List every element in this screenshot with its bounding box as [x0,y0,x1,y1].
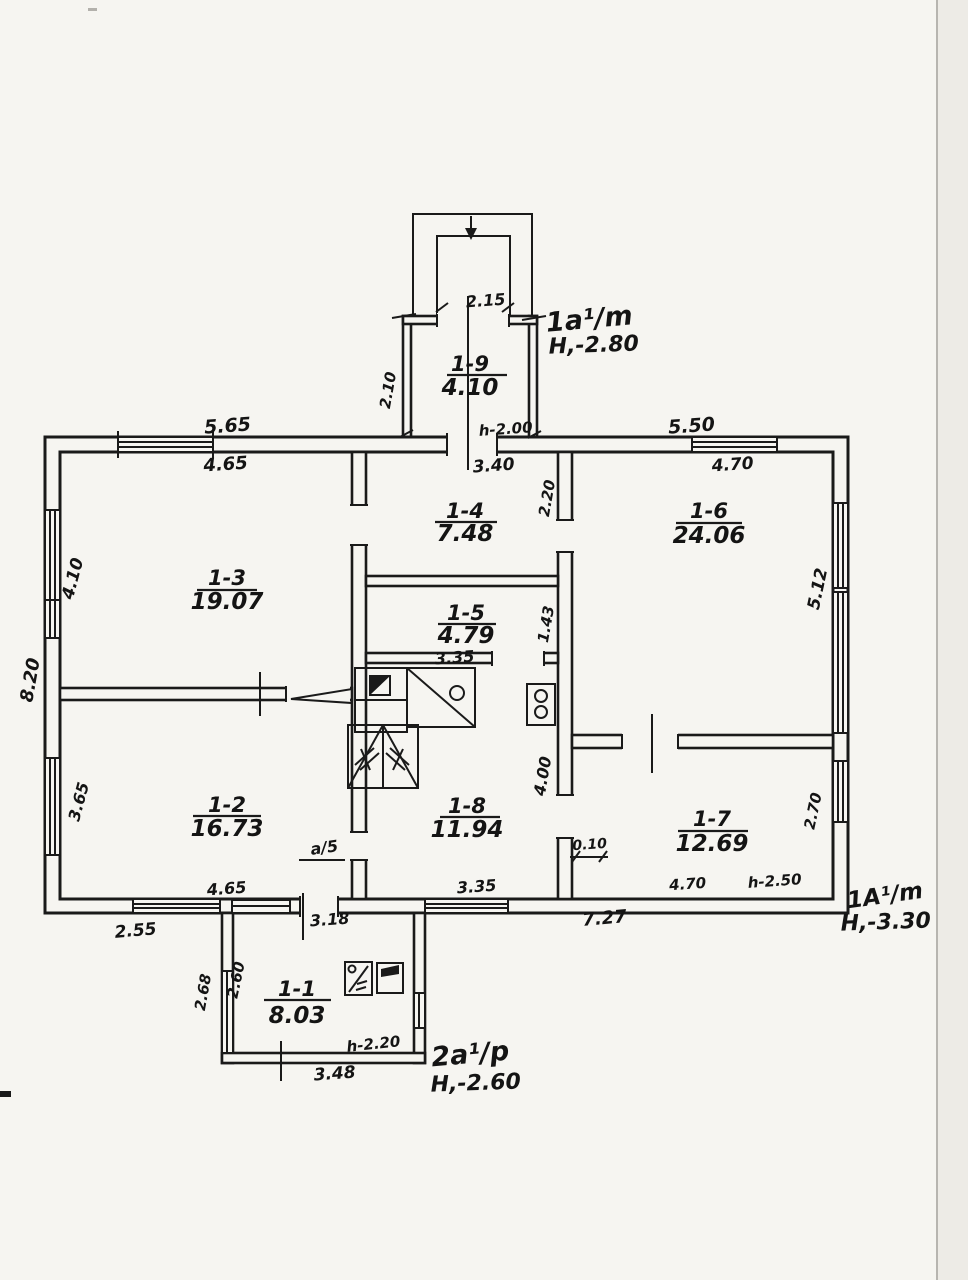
cooking-stove-burners [527,684,555,725]
dim-top-right-outer: 5.50 [667,413,715,438]
dim-r18-height: 4.00 [530,755,556,798]
room-1-2-label: 1-2 16.73 [191,793,264,842]
dim-vestibule-depth: 2.10 [376,370,400,410]
entrance-arrow-icon [465,228,477,240]
dim-r18-width: 3.35 [456,876,497,898]
room-1-5-area: 4.79 [437,623,495,649]
dim-r16-height: 5.12 [804,566,832,611]
dim-left-total: 8.20 [16,656,44,703]
window-annex-right [414,993,425,1028]
window-left-lower [45,758,60,855]
scanned-floor-plan-page: 1-3 19.07 1-2 16.73 1-4 7.48 1-5 4.79 1-… [0,0,968,1280]
zone-vestibule-elevation: H,-2.80 [548,331,639,359]
room-1-5-label: 1-5 4.79 [437,601,496,649]
window-annex-top [232,900,290,913]
dim-porch-width: 2.15 [465,290,506,312]
dim-entry-door: h-2.00 [478,418,533,440]
room-1-9-area: 4.10 [441,375,499,401]
window-left-upper [45,510,60,638]
room-1-6-label: 1-6 24.06 [673,499,746,549]
room-1-8-code: 1-8 [448,794,486,818]
dim-door-mark: a/5 [309,836,339,859]
room-1-8-area: 11.94 [431,817,504,843]
room-1-7-code: 1-7 [693,807,731,831]
window-top-right [692,437,777,452]
room-1-1-code: 1-1 [278,977,316,1001]
room-1-6-area: 24.06 [673,523,746,549]
room-1-2-code: 1-2 [208,793,246,817]
room-1-7-label: 1-7 12.69 [676,807,749,857]
room-1-6-code: 1-6 [690,499,728,523]
dim-r13-width: 4.65 [202,452,249,476]
room-1-8-label: 1-8 11.94 [431,794,504,843]
dim-r13-height: 4.10 [58,556,88,603]
dim-r12-width: 4.65 [205,878,247,900]
dim-r15-height: 1.43 [534,604,558,644]
dim-r12-height: 3.65 [64,780,93,823]
dim-bottom-left-outer: 2.55 [114,919,158,943]
room-1-5-code: 1-5 [447,601,485,625]
dim-bottom-right-outer: 7.27 [581,906,628,931]
dim-r17-height: 2.70 [800,791,825,831]
room-1-9-code: 1-9 [451,352,489,376]
room-1-1-area: 8.03 [269,1003,326,1029]
room-1-4-label: 1-4 7.48 [435,499,497,547]
dim-r17-door: h-2.50 [747,870,802,892]
zone-annex-mark: 2a¹/p [430,1036,510,1074]
room-1-9-label: 1-9 4.10 [441,352,507,401]
dim-wall-offset: 0.10 [572,836,608,854]
window-bottom-left [133,899,220,913]
window-right-lower [833,761,848,822]
dim-r17-width: 4.70 [668,874,707,895]
window-bottom-middle [425,899,508,913]
dim-r11-top-width: 3.18 [309,909,350,931]
floor-plan: 1-3 19.07 1-2 16.73 1-4 7.48 1-5 4.79 1-… [0,0,968,1280]
zone-main-elevation: H,-3.30 [840,908,931,936]
bathtub [407,668,475,727]
room-1-3-code: 1-3 [208,566,246,590]
dim-top-left-outer: 5.65 [203,413,251,438]
dim-r14-height: 2.20 [535,478,559,518]
room-1-7-area: 12.69 [676,831,749,857]
dim-r16-width: 4.70 [710,454,754,477]
dim-r11-bottom-width: 3.48 [313,1063,356,1086]
room-1-1-label: 1-1 8.03 [264,977,331,1029]
window-top-left [118,437,213,452]
room-1-3-area: 19.07 [191,589,264,615]
dim-r15-width: 3.35 [434,647,475,669]
zone-annex-elevation: H,-2.60 [430,1069,521,1097]
annex-meter-box [345,962,372,995]
room-1-4-area: 7.48 [437,521,494,547]
dim-r11-left-outer: 2.68 [191,972,215,1012]
annex-stove-box [377,963,403,993]
dim-r14-width: 3.40 [472,455,515,478]
room-1-4-code: 1-4 [446,499,484,523]
window-right-upper [833,503,848,588]
room-1-3-label: 1-3 19.07 [191,566,264,615]
room-1-2-area: 16.73 [191,816,264,842]
window-right-middle [833,592,848,733]
